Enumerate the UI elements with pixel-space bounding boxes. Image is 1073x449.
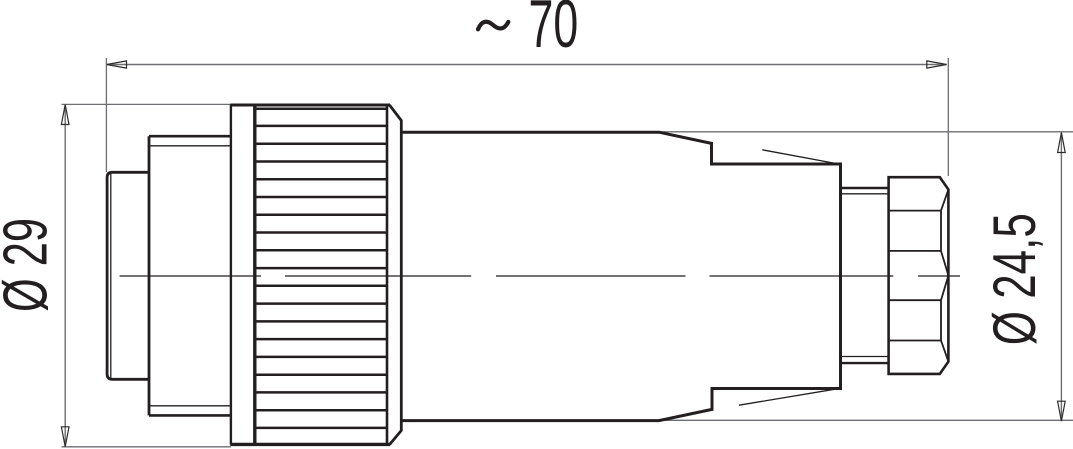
svg-text:Ø 24,5: Ø 24,5 [981, 213, 1048, 345]
svg-text:Ø 29: Ø 29 [0, 218, 60, 312]
svg-text:70: 70 [529, 0, 579, 62]
